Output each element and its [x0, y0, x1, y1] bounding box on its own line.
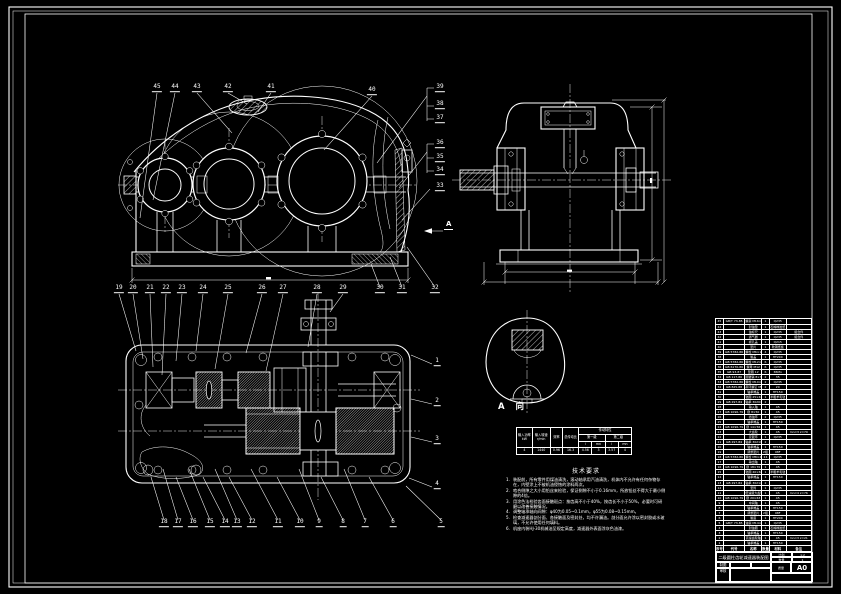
- parts-list-row: 9中间轴145: [716, 500, 811, 505]
- parts-list-cell: 11: [716, 491, 724, 495]
- parts-list-cell: 1: [762, 506, 770, 510]
- parts-list-cell: 1: [762, 425, 770, 429]
- parts-list-cell: [787, 470, 811, 474]
- parts-list-cell: 27: [716, 410, 724, 414]
- parts-list-cell: 1: [762, 486, 770, 490]
- parts-list-cell: 37: [716, 360, 724, 364]
- parts-list-cell: GB 1096-79: [724, 465, 746, 469]
- technical-notes: 技术要求 1.装配前，所有零件用煤油清洗，滚动轴承用汽油清洗，机体内不允许有任何…: [506, 466, 666, 532]
- parts-list-cell: [724, 470, 746, 474]
- parts-list-cell: 2组: [762, 450, 770, 454]
- callout-5: 5: [438, 519, 445, 527]
- parts-list-cell: [787, 405, 811, 409]
- parts-list-cell: 28: [716, 405, 724, 409]
- parts-list-row: 10GB 1096-79键 20×63145: [716, 495, 811, 500]
- callout-15: 15: [205, 519, 215, 527]
- parts-list-cell: 螺塞 M16×1.5: [745, 319, 762, 324]
- parts-list-cell: [787, 375, 811, 379]
- parts-list-cell: 2: [716, 536, 724, 540]
- parts-list-cell: 1: [762, 475, 770, 479]
- spec-power-label: 输入功率 kW: [517, 428, 533, 448]
- note-item: 2.啮合侧隙之大小用铅丝来检验，保证侧隙不小于0.16mm，所放铅丝不得大于最小…: [506, 488, 666, 498]
- parts-list-cell: 45: [770, 465, 787, 469]
- parts-list-cell: [724, 491, 746, 495]
- parts-list-cell: [724, 415, 746, 419]
- parts-list-cell: [787, 370, 811, 374]
- parts-list-cell: 20: [716, 445, 724, 449]
- parts-list-cell: 输入轴: [745, 405, 762, 409]
- parts-list-row: 39GB 5782-86螺栓 M6×164Q235: [716, 349, 811, 354]
- parts-list-row: 5GB/T 73-85油塞 M14×1.51Q235: [716, 520, 811, 525]
- parts-list-cell: 轴承 30211: [745, 440, 762, 444]
- parts-list-cell: [724, 536, 746, 540]
- parts-list-cell: 低速级大齿轮: [745, 491, 762, 495]
- parts-list-cell: 30: [716, 395, 724, 399]
- parts-list-cell: 高速齿轮轴: [745, 536, 762, 540]
- parts-list-cell: [787, 390, 811, 394]
- parts-list-cell: [787, 501, 811, 505]
- parts-list-cell: Q235: [770, 350, 787, 354]
- callout-3: 3: [434, 436, 441, 444]
- parts-list-cell: 1: [762, 496, 770, 500]
- parts-list-cell: [787, 486, 811, 490]
- parts-list-cell: GB 93-87: [724, 370, 746, 374]
- parts-list-cell: 45: [770, 425, 787, 429]
- parts-list-row: 13GB 297-84轴承 302142: [716, 480, 811, 485]
- callout-1: 1: [434, 358, 441, 366]
- parts-list-cell: 2: [762, 385, 770, 389]
- note-item: 4.调整轴承轴向间隙：φ40为0.05~0.1mm，φ55为0.08~0.15m…: [506, 509, 666, 514]
- parts-list-cell: 输出轴: [745, 460, 762, 464]
- parts-list-cell: [787, 531, 811, 535]
- parts-list-cell: 1: [762, 541, 770, 545]
- parts-list-row: 19调整垫片2组08F: [716, 449, 811, 454]
- parts-list-cell: Q215: [770, 340, 787, 344]
- parts-list-row: 25轴承端盖1HT150: [716, 419, 811, 424]
- parts-list-cell: [787, 460, 811, 464]
- notes-list: 1.装配前，所有零件用煤油清洗，滚动轴承用汽油清洗，机体内不允许有任何杂物存在，…: [506, 477, 666, 531]
- bearing-boss-3: [277, 130, 367, 231]
- spec-stage2-label: 第二级: [605, 435, 631, 442]
- parts-list-cell: 中间轴: [745, 501, 762, 505]
- parts-list-cell: 毡圈 40×60: [745, 470, 762, 474]
- spec-speed-value: 1440: [532, 448, 550, 455]
- parts-list-cell: [770, 400, 787, 404]
- parts-list-cell: 45: [770, 536, 787, 540]
- callout-41: 41: [266, 84, 276, 92]
- parts-list-cell: 螺栓 M8×25: [745, 455, 762, 459]
- parts-list-cell: 45: [770, 410, 787, 414]
- org-cell: [771, 573, 813, 582]
- callout-11: 11: [273, 519, 283, 527]
- parts-list-cell: 吊环螺钉 M10: [745, 385, 762, 389]
- spec-s1-mn: 3: [592, 448, 605, 455]
- end-view: [452, 84, 672, 292]
- sheet-size: A0: [791, 562, 813, 573]
- callout-31: 31: [397, 285, 407, 293]
- parts-list-cell: 20: [770, 385, 787, 389]
- parts-list-cell: GB 5782-86: [724, 350, 746, 354]
- callout-2: 2: [434, 398, 441, 406]
- callout-38: 38: [435, 101, 445, 109]
- parts-list-row: 11低速级大齿轮145mn=4 z=76: [716, 490, 811, 495]
- parts-list-row: 4封油圈1石棉橡胶纸: [716, 525, 811, 530]
- parts-list-cell: 13: [716, 481, 724, 485]
- parts-list-cell: 2: [762, 415, 770, 419]
- parts-list-cell: [724, 430, 746, 434]
- parts-list-cell: 45: [716, 319, 724, 324]
- callout-20: 20: [128, 285, 138, 293]
- parts-list-cell: Q235: [770, 365, 787, 369]
- parts-list-row: 36GB 6170-86螺母 M126Q235: [716, 364, 811, 369]
- parts-list-cell: 39: [716, 350, 724, 354]
- callout-44: 44: [170, 84, 180, 92]
- bearing-boss-2: [193, 143, 265, 225]
- parts-list-cell: 半粗羊毛毡: [770, 395, 787, 399]
- parts-list-row: 37GB 5782-86螺栓 M12×1006Q235: [716, 359, 811, 364]
- front-dimension: [130, 268, 411, 283]
- parts-list-cell: [770, 440, 787, 444]
- parts-list-cell: 1: [762, 526, 770, 530]
- parts-list-cell: 1: [762, 319, 770, 324]
- parts-list-cell: 套筒: [745, 486, 762, 490]
- parts-list-cell: 1: [762, 405, 770, 409]
- parts-list-cell: 键 18×70: [745, 465, 762, 469]
- parts-list-cell: 1: [762, 531, 770, 535]
- parts-list-row: 33GB 5782-86螺栓 M10×352Q235: [716, 379, 811, 384]
- parts-list-cell: [724, 526, 746, 530]
- parts-list-cell: [787, 410, 811, 414]
- callout-26: 26: [257, 285, 267, 293]
- parts-list-cell: GB/T 73-85: [724, 521, 746, 525]
- parts-list-cell: HT150: [770, 390, 787, 394]
- parts-list-cell: 6: [762, 365, 770, 369]
- parts-list-row: 32GB 825-88吊环螺钉 M10220: [716, 384, 811, 389]
- callout-33: 33: [435, 183, 445, 191]
- parts-list-cell: mn=3 z=21: [787, 536, 811, 540]
- callout-23: 23: [177, 285, 187, 293]
- parts-list-cell: 65Mn: [770, 370, 787, 374]
- parts-list-cell: 轴承端盖: [745, 475, 762, 479]
- parts-list-cell: 轴承 30214: [745, 481, 762, 485]
- parts-list-cell: [787, 481, 811, 485]
- parts-list-cell: 封油圈: [745, 526, 762, 530]
- lower-gear-train: [204, 408, 394, 454]
- parts-list-cell: HT200: [770, 355, 787, 359]
- parts-list-cell: 油塞 M14×1.5: [745, 521, 762, 525]
- parts-list-cell: Q235: [770, 360, 787, 364]
- parts-list-cell: 44: [716, 325, 724, 329]
- parts-list-cell: 24: [716, 425, 724, 429]
- parts-list-cell: [787, 425, 811, 429]
- callout-29: 29: [338, 285, 348, 293]
- parts-list-cell: 6: [762, 370, 770, 374]
- parts-list-cell: [724, 390, 746, 394]
- parts-list-cell: 14: [716, 475, 724, 479]
- parts-list-cell: 大齿轮: [745, 430, 762, 434]
- parts-list-cell: [787, 360, 811, 364]
- parts-list-cell: 视孔盖: [745, 340, 762, 344]
- parts-list-cell: 10: [716, 496, 724, 500]
- parts-list-cell: [787, 385, 811, 389]
- parts-list-cell: 螺栓 M12×100: [745, 360, 762, 364]
- parts-list-row: 27GB 1096-79键 8×50145: [716, 409, 811, 414]
- parts-list-cell: [724, 355, 746, 359]
- note-item: 6.机座内装HJ-30机械油至规定高度，减速器外表面涂灰色油漆。: [506, 526, 666, 531]
- parts-list-cell: 圆锥销 8×30: [745, 375, 762, 379]
- parts-list-row: 42通气器1Q235组合件: [716, 334, 811, 339]
- parts-list-cell: [787, 455, 811, 459]
- parts-list-cell: 45: [770, 430, 787, 434]
- parts-list-cell: [787, 350, 811, 354]
- callout-25: 25: [223, 285, 233, 293]
- callout-45: 45: [152, 84, 162, 92]
- parts-list-row: 28输入轴145: [716, 404, 811, 409]
- parts-list-cell: [787, 319, 811, 324]
- spec-eff-label: 效率: [550, 428, 562, 448]
- parts-list-cell: 轴承端盖: [745, 531, 762, 535]
- spec-trans-label: 传动特性: [579, 428, 632, 435]
- parts-list-cell: [724, 445, 746, 449]
- parts-list-cell: Q235: [770, 521, 787, 525]
- spec-s2-mn: 4: [618, 448, 631, 455]
- parts-list-cell: Q235: [770, 455, 787, 459]
- parts-list-cell: 24: [762, 455, 770, 459]
- callout-34: 34: [435, 167, 445, 175]
- parts-list-cell: 45: [770, 496, 787, 500]
- parts-list-cell: [787, 415, 811, 419]
- parts-list-cell: 40: [716, 345, 724, 349]
- spec-s2-i: 3.57: [605, 448, 618, 455]
- parts-list-row: 30毡圈 25×401半粗羊毛毡: [716, 394, 811, 399]
- parts-list-cell: [787, 365, 811, 369]
- parts-list-cell: 组合件: [787, 335, 811, 339]
- note-item: 3.用涂色法检验齿面接触斑点：按齿高不小于40%，按齿长不小于50%，必要时可研…: [506, 499, 666, 509]
- callout-39: 39: [435, 84, 445, 92]
- checked-by-label: 审核: [716, 568, 730, 582]
- parts-list-cell: 7: [716, 511, 724, 515]
- parts-list-cell: Q235: [770, 435, 787, 439]
- callout-27: 27: [278, 285, 288, 293]
- parts-list-cell: [724, 501, 746, 505]
- parts-list-cell: GB/T 73-85: [724, 319, 746, 324]
- parts-list-cell: [724, 450, 746, 454]
- parts-list-cell: 油标尺: [745, 330, 762, 334]
- parts-list-cell: 1: [762, 355, 770, 359]
- callout-8: 8: [340, 519, 347, 527]
- parts-list-cell: 键 14×56: [745, 425, 762, 429]
- note-item: 1.装配前，所有零件用煤油清洗，滚动轴承用汽油清洗，机体内不允许有任何杂物存在，…: [506, 477, 666, 487]
- parts-list-cell: 35: [716, 370, 724, 374]
- parts-list-cell: 1: [762, 420, 770, 424]
- parts-list-cell: [770, 481, 787, 485]
- parts-list-cell: 8: [716, 506, 724, 510]
- parts-list-cell: 2: [762, 400, 770, 404]
- parts-list-cell: 垫片: [745, 345, 762, 349]
- parts-list-cell: 1: [762, 330, 770, 334]
- parts-list-cell: [787, 380, 811, 384]
- parts-list-cell: [787, 511, 811, 515]
- parts-list-row: 2高速齿轮轴145mn=3 z=21: [716, 535, 811, 540]
- parts-list-cell: 1: [762, 435, 770, 439]
- parts-list-cell: 45: [770, 405, 787, 409]
- parts-list-cell: 1: [762, 536, 770, 540]
- parts-list-cell: [724, 531, 746, 535]
- parts-list-row: 24GB 1096-79键 14×56145: [716, 424, 811, 429]
- parts-list-cell: 1: [762, 395, 770, 399]
- a-view: [486, 310, 565, 414]
- parts-list-cell: [787, 506, 811, 510]
- parts-list-row: 21GB 297-84轴承 302112: [716, 439, 811, 444]
- callout-16: 16: [188, 519, 198, 527]
- parts-list-cell: 1: [762, 335, 770, 339]
- parts-list-cell: 毡圈 25×40: [745, 395, 762, 399]
- parts-list-row: 17输出轴145: [716, 459, 811, 464]
- parts-list-cell: [787, 400, 811, 404]
- parts-list-cell: 08F: [770, 450, 787, 454]
- parts-list-cell: 1: [762, 465, 770, 469]
- parts-list-cell: 3: [716, 531, 724, 535]
- parts-list-cell: 41: [716, 340, 724, 344]
- parts-list-cell: 箱座: [745, 516, 762, 520]
- parts-list-row: 15毡圈 40×601半粗羊毛毡: [716, 469, 811, 474]
- parts-list-cell: Q235: [770, 380, 787, 384]
- parts-list-cell: [724, 486, 746, 490]
- parts-list-cell: 1: [762, 445, 770, 449]
- parts-list-cell: [787, 521, 811, 525]
- parts-list-cell: 6: [716, 516, 724, 520]
- parts-list-cell: Q235: [770, 415, 787, 419]
- parts-list-cell: [787, 541, 811, 545]
- parts-list-cell: [724, 475, 746, 479]
- callout-18: 18: [159, 519, 169, 527]
- checked-by-name: [730, 568, 771, 582]
- parts-list-cell: [724, 340, 746, 344]
- parts-list-cell: [787, 440, 811, 444]
- parts-list-cell: Q235: [770, 319, 787, 324]
- parts-list-row: 34GB 117-86圆锥销 8×30235: [716, 374, 811, 379]
- parts-list-cell: [724, 460, 746, 464]
- parts-list-cell: 1: [716, 541, 724, 545]
- parts-list-cell: GB 6170-86: [724, 365, 746, 369]
- parts-list-row: 18GB 5782-86螺栓 M8×2524Q235: [716, 454, 811, 459]
- parts-list-row: 31轴承端盖1HT150: [716, 389, 811, 394]
- parts-list-cell: 45: [770, 460, 787, 464]
- parts-list-cell: 1: [762, 470, 770, 474]
- parts-list-row: 22定距环1Q235: [716, 434, 811, 439]
- parts-list-cell: 5: [716, 521, 724, 525]
- parts-list-cell: 2: [762, 375, 770, 379]
- parts-list-row: 41视孔盖1Q215: [716, 339, 811, 344]
- plan-view: [118, 293, 420, 500]
- parts-list-cell: 45: [770, 501, 787, 505]
- parts-list-cell: [724, 335, 746, 339]
- parts-list-cell: [724, 516, 746, 520]
- parts-list-cell: 22: [716, 435, 724, 439]
- parts-list-cell: HT150: [770, 420, 787, 424]
- drawing-title: 二级圆柱齿轮减速器装配图: [716, 552, 771, 562]
- parts-list-cell: GB 297-84: [724, 481, 746, 485]
- parts-list-cell: 45: [770, 491, 787, 495]
- parts-list-cell: [787, 395, 811, 399]
- callout-36: 36: [435, 140, 445, 148]
- parts-list-cell: Q235: [770, 335, 787, 339]
- parts-list-cell: [724, 330, 746, 334]
- parts-list-cell: GB 825-88: [724, 385, 746, 389]
- parts-list-cell: Q235: [770, 486, 787, 490]
- parts-list-cell: [724, 541, 746, 545]
- parts-list-cell: 9: [716, 501, 724, 505]
- callout-4: 4: [434, 481, 441, 489]
- view-a-title: A 向: [498, 400, 528, 412]
- parts-list-cell: 2: [762, 481, 770, 485]
- parts-list-cell: 1: [762, 491, 770, 495]
- parts-list-row: 1轴承端盖1HT150: [716, 540, 811, 545]
- parts-list-cell: GB 5782-86: [724, 455, 746, 459]
- parts-list-row: 45GB/T 73-85螺塞 M16×1.51Q235: [716, 319, 811, 324]
- parts-list-cell: [787, 475, 811, 479]
- parts-list-cell: 2: [762, 440, 770, 444]
- parts-list-cell: 键 8×50: [745, 410, 762, 414]
- parts-list-cell: 箱盖: [745, 355, 762, 359]
- parts-list-row: 44封油垫1石棉橡胶纸: [716, 324, 811, 329]
- callout-13: 13: [232, 519, 242, 527]
- parts-list-cell: GB 297-84: [724, 400, 746, 404]
- parts-list-cell: 轴承端盖: [745, 445, 762, 449]
- parts-list-cell: 轴承端盖: [745, 390, 762, 394]
- callout-37: 37: [435, 115, 445, 123]
- parts-list: 45GB/T 73-85螺塞 M16×1.51Q23544封油垫1石棉橡胶纸43…: [715, 318, 812, 553]
- parts-list-cell: 35: [770, 375, 787, 379]
- parts-list-cell: 挡油环: [745, 415, 762, 419]
- parts-list-cell: Q235: [770, 330, 787, 334]
- parts-list-cell: HT200: [770, 516, 787, 520]
- callout-12: 12: [247, 519, 257, 527]
- callout-21: 21: [145, 285, 155, 293]
- parts-list-cell: 42: [716, 335, 724, 339]
- parts-list-cell: 36: [716, 365, 724, 369]
- parts-list-cell: 16: [716, 465, 724, 469]
- parts-list-cell: HT150: [770, 531, 787, 535]
- spec-stage1-label: 第一级: [579, 435, 605, 442]
- parts-list-cell: 键 20×63: [745, 496, 762, 500]
- callout-24: 24: [198, 285, 208, 293]
- parts-list-cell: 33: [716, 380, 724, 384]
- parts-list-cell: [724, 435, 746, 439]
- parts-list-cell: [787, 450, 811, 454]
- parts-list-row: 7调整垫片2组08F: [716, 510, 811, 515]
- parts-list-row: 6箱座1HT200: [716, 515, 811, 520]
- parts-list-cell: GB 297-84: [724, 440, 746, 444]
- callout-14: 14: [220, 519, 230, 527]
- parts-list-cell: 15: [716, 470, 724, 474]
- spec-s1-i: 4.56: [579, 448, 592, 455]
- parts-list-cell: 组合件: [787, 330, 811, 334]
- parts-list-cell: 2组: [762, 511, 770, 515]
- callout-40: 40: [367, 87, 377, 95]
- parts-list-rows: 45GB/T 73-85螺塞 M16×1.51Q23544封油垫1石棉橡胶纸43…: [716, 319, 811, 545]
- parts-list-row: 8轴承端盖1HT150: [716, 505, 811, 510]
- spec-table: 输入功率 kW 输入转速 r/min 效率 总传动比 传动特性 第一级 第二级 …: [516, 427, 632, 455]
- parts-list-cell: 石棉橡胶纸: [770, 526, 787, 530]
- parts-list-cell: 调整垫片: [745, 450, 762, 454]
- parts-list-cell: 1: [762, 390, 770, 394]
- parts-list-cell: mn=3 z=79: [787, 430, 811, 434]
- parts-list-cell: [787, 325, 811, 329]
- parts-list-row: 3轴承端盖1HT150: [716, 530, 811, 535]
- parts-list-cell: [724, 405, 746, 409]
- parts-list-cell: 石棉橡胶纸: [770, 325, 787, 329]
